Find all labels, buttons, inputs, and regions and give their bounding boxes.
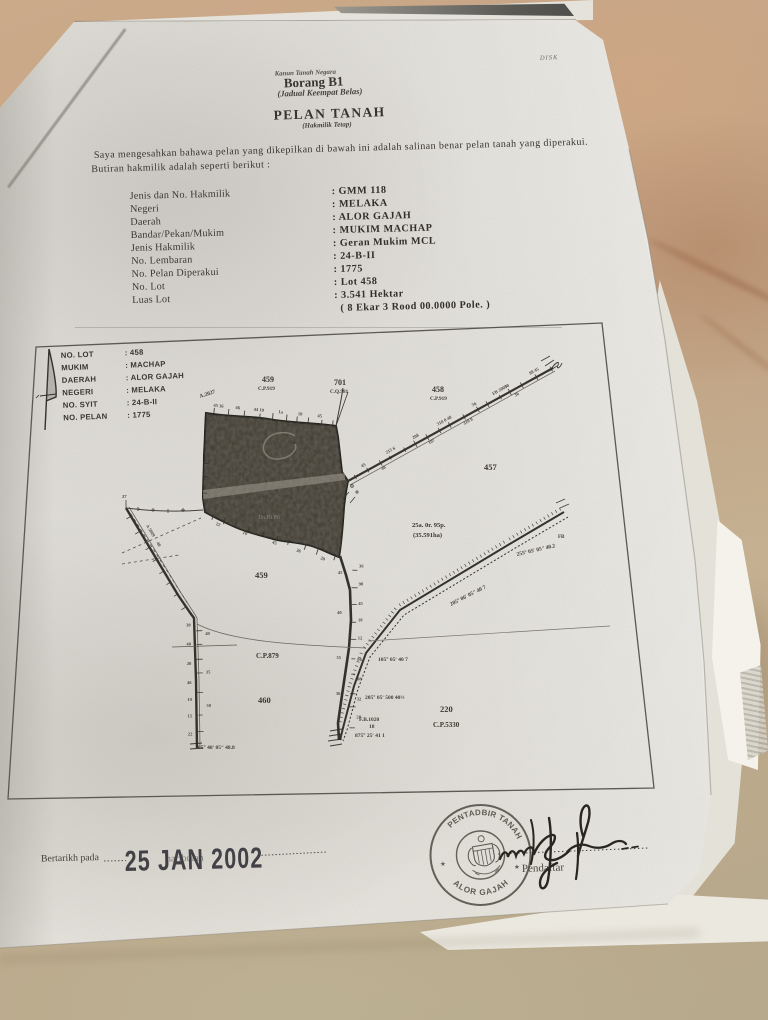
svg-text:★: ★: [440, 860, 446, 868]
svg-text:: 1775: : 1775: [127, 410, 151, 420]
svg-text:(35.591ha): (35.591ha): [413, 532, 442, 539]
svg-text:Negeri: Negeri: [130, 203, 159, 215]
svg-text:C.P.919: C.P.919: [430, 396, 447, 402]
svg-text:205° 05ʹ 500 40½: 205° 05ʹ 500 40½: [365, 694, 405, 701]
svg-text:98: 98: [359, 581, 364, 586]
svg-text:NO. LOT: NO. LOT: [61, 350, 94, 360]
svg-text:Daerah: Daerah: [130, 216, 161, 228]
svg-text:: MELAKA: : MELAKA: [126, 384, 166, 395]
svg-text:No. Pelan Diperakui: No. Pelan Diperakui: [131, 267, 219, 280]
svg-text:30: 30: [206, 703, 211, 708]
svg-text:C.Q.981: C.Q.981: [330, 389, 349, 395]
svg-text:No. Lot: No. Lot: [132, 281, 165, 293]
svg-text:Bandar/Pekan/Mukim: Bandar/Pekan/Mukim: [131, 228, 225, 241]
svg-text:88: 88: [357, 677, 362, 682]
svg-text:40: 40: [186, 642, 191, 647]
svg-text:F.B.1020: F.B.1020: [359, 717, 380, 723]
svg-text:40: 40: [337, 610, 342, 615]
svg-text:: MELAKA: : MELAKA: [332, 198, 388, 210]
svg-text:(Hakmilik Tetap): (Hakmilik Tetap): [302, 120, 352, 130]
svg-text:701: 701: [334, 378, 346, 387]
svg-text:35: 35: [336, 655, 341, 660]
svg-text:36: 36: [359, 563, 364, 568]
svg-text:Jln Bt P6: Jln Bt P6: [258, 515, 280, 521]
svg-text:C.P.919: C.P.919: [258, 386, 275, 392]
svg-text:: MACHAP: : MACHAP: [125, 359, 166, 370]
svg-text:105° 05ʹ 40 7: 105° 05ʹ 40 7: [378, 656, 408, 663]
svg-text:NO. PELAN: NO. PELAN: [63, 412, 108, 423]
svg-text:18: 18: [369, 724, 375, 730]
svg-text:: 458: : 458: [125, 348, 145, 358]
svg-text:460: 460: [258, 695, 271, 705]
svg-text:27: 27: [122, 494, 127, 499]
svg-text:20: 20: [187, 661, 192, 666]
svg-text:12: 12: [358, 635, 363, 640]
svg-text:25a. 0r. 95p.: 25a. 0r. 95p.: [412, 522, 446, 529]
svg-text:45: 45: [358, 601, 363, 606]
svg-text:40: 40: [205, 631, 210, 636]
svg-text:★: ★: [514, 863, 520, 871]
svg-text:FB: FB: [558, 535, 565, 540]
svg-text:32: 32: [357, 697, 362, 702]
svg-text:: 1775: : 1775: [333, 263, 363, 275]
svg-text:458: 458: [432, 385, 444, 394]
svg-text:220: 220: [440, 704, 453, 714]
svg-text:No. Lembaran: No. Lembaran: [131, 255, 193, 267]
svg-text:45: 45: [338, 570, 343, 575]
svg-text:DAERAH: DAERAH: [62, 375, 97, 385]
svg-text:: GMM 118: : GMM 118: [331, 185, 386, 197]
svg-text:: 3.541 Hektar: : 3.541 Hektar: [334, 288, 404, 301]
svg-text:46: 46: [187, 680, 192, 685]
svg-text:459: 459: [255, 570, 268, 580]
svg-text:459: 459: [262, 375, 274, 384]
svg-text:MUKIM: MUKIM: [61, 362, 89, 372]
svg-text:28: 28: [356, 715, 361, 720]
svg-text:Luas Lot: Luas Lot: [132, 294, 170, 306]
svg-text:19: 19: [187, 697, 192, 702]
svg-text:C.P.5330: C.P.5330: [433, 721, 460, 729]
svg-text:457: 457: [484, 462, 498, 472]
svg-text:15: 15: [188, 713, 193, 718]
svg-text:NO. SYIT: NO. SYIT: [63, 400, 98, 410]
svg-text:Bertarikh pada: Bertarikh pada: [41, 852, 100, 864]
svg-text:875° 25ʹ 41 1: 875° 25ʹ 41 1: [355, 732, 385, 739]
svg-text:C.P.879: C.P.879: [256, 652, 279, 660]
svg-text:35: 35: [206, 670, 211, 675]
svg-text:25 JAN 2002: 25 JAN 2002: [124, 842, 263, 877]
svg-text:30: 30: [186, 623, 191, 628]
svg-text:18: 18: [358, 617, 363, 622]
svg-text:22: 22: [188, 731, 193, 736]
svg-text:NEGERI: NEGERI: [62, 387, 93, 397]
svg-text:: ALOR GAJAH: : ALOR GAJAH: [332, 210, 411, 223]
svg-text:Jenis Hakmilik: Jenis Hakmilik: [131, 241, 196, 254]
svg-text:DISK: DISK: [539, 54, 559, 62]
svg-text:: Lot 458: : Lot 458: [334, 276, 378, 288]
svg-text:30: 30: [336, 691, 341, 696]
svg-text:: 24-B-II: : 24-B-II: [333, 250, 375, 262]
svg-text:85° 48ʹ 05ʺ 48.8: 85° 48ʹ 05ʺ 48.8: [198, 744, 235, 751]
svg-text:: 24-B-II: : 24-B-II: [127, 397, 158, 407]
